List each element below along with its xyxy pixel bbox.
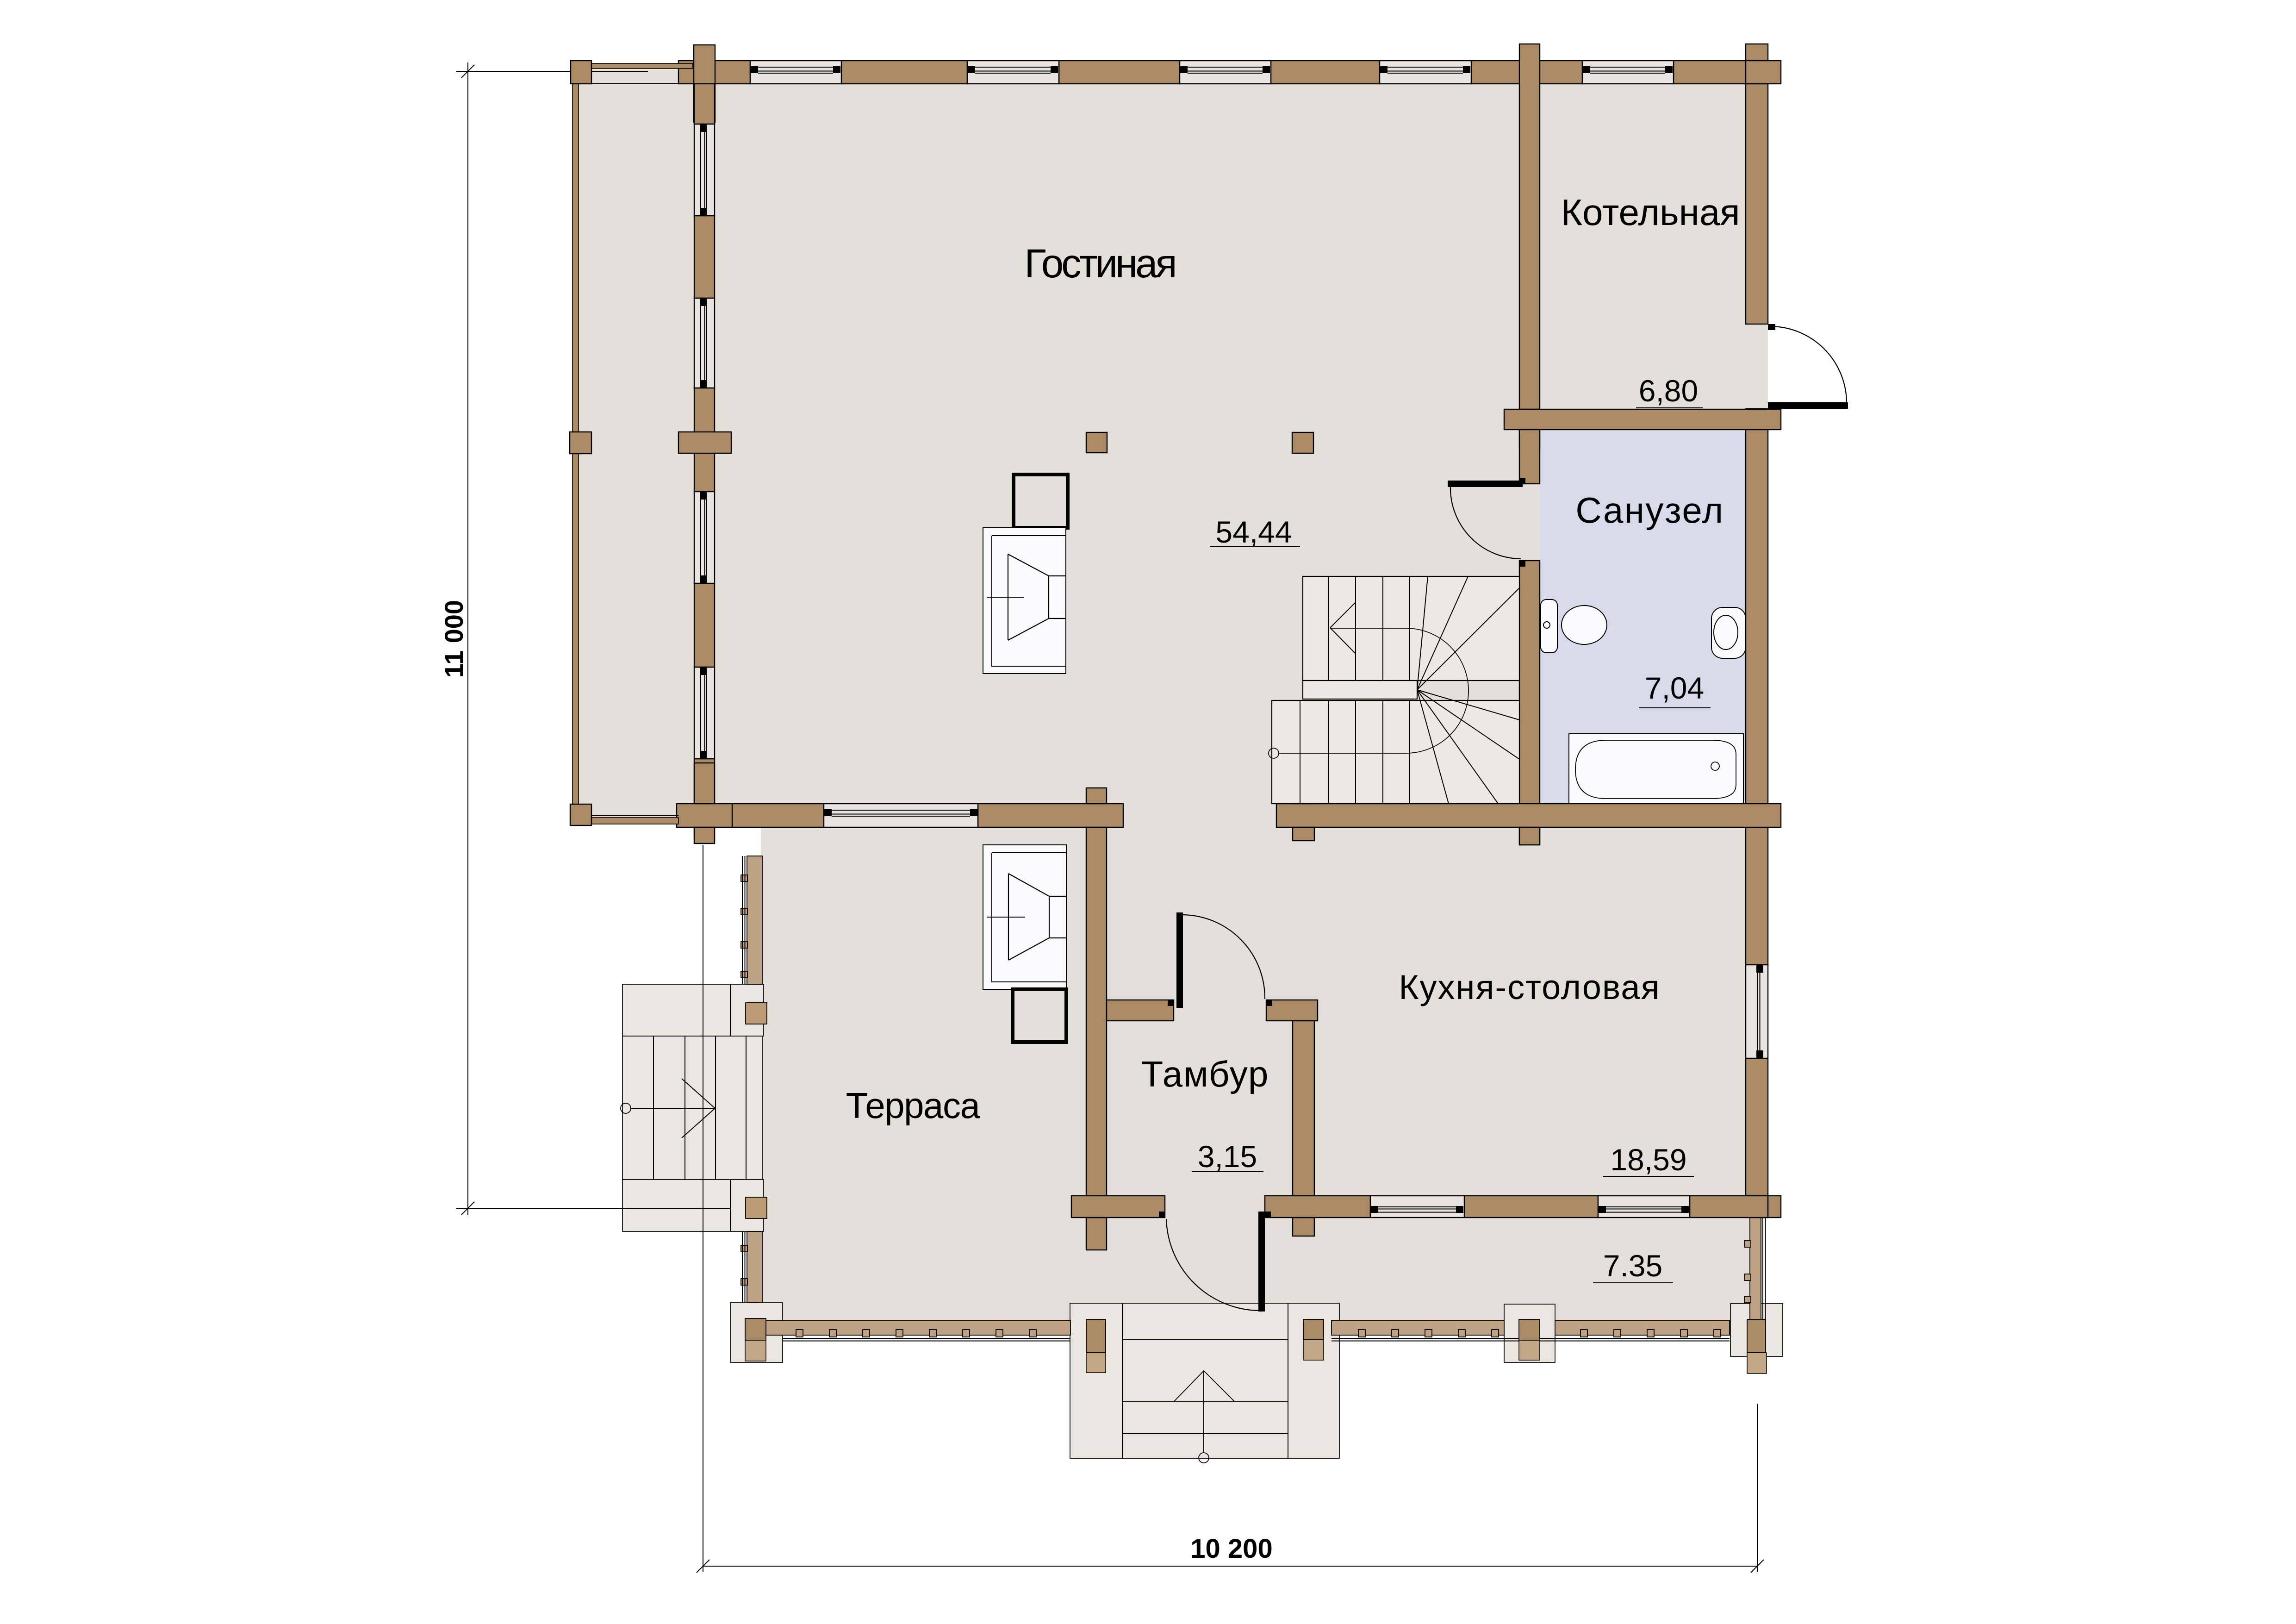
svg-text:11 000: 11 000 bbox=[439, 600, 468, 678]
svg-text:Терраса: Терраса bbox=[846, 1085, 981, 1126]
svg-text:Котельная: Котельная bbox=[1561, 192, 1740, 233]
svg-text:6,80: 6,80 bbox=[1639, 374, 1698, 408]
svg-text:3,15: 3,15 bbox=[1198, 1139, 1257, 1174]
svg-text:Тамбур: Тамбур bbox=[1141, 1054, 1269, 1094]
svg-text:7.35: 7.35 bbox=[1603, 1249, 1662, 1283]
svg-text:Санузел: Санузел bbox=[1575, 490, 1724, 531]
svg-text:Гостиная: Гостиная bbox=[1024, 241, 1175, 286]
svg-text:Кухня-столовая: Кухня-столовая bbox=[1399, 968, 1660, 1006]
svg-text:7,04: 7,04 bbox=[1645, 671, 1704, 705]
svg-text:18,59: 18,59 bbox=[1610, 1143, 1686, 1177]
svg-text:10 200: 10 200 bbox=[1190, 1534, 1272, 1564]
svg-text:54,44: 54,44 bbox=[1215, 515, 1292, 549]
